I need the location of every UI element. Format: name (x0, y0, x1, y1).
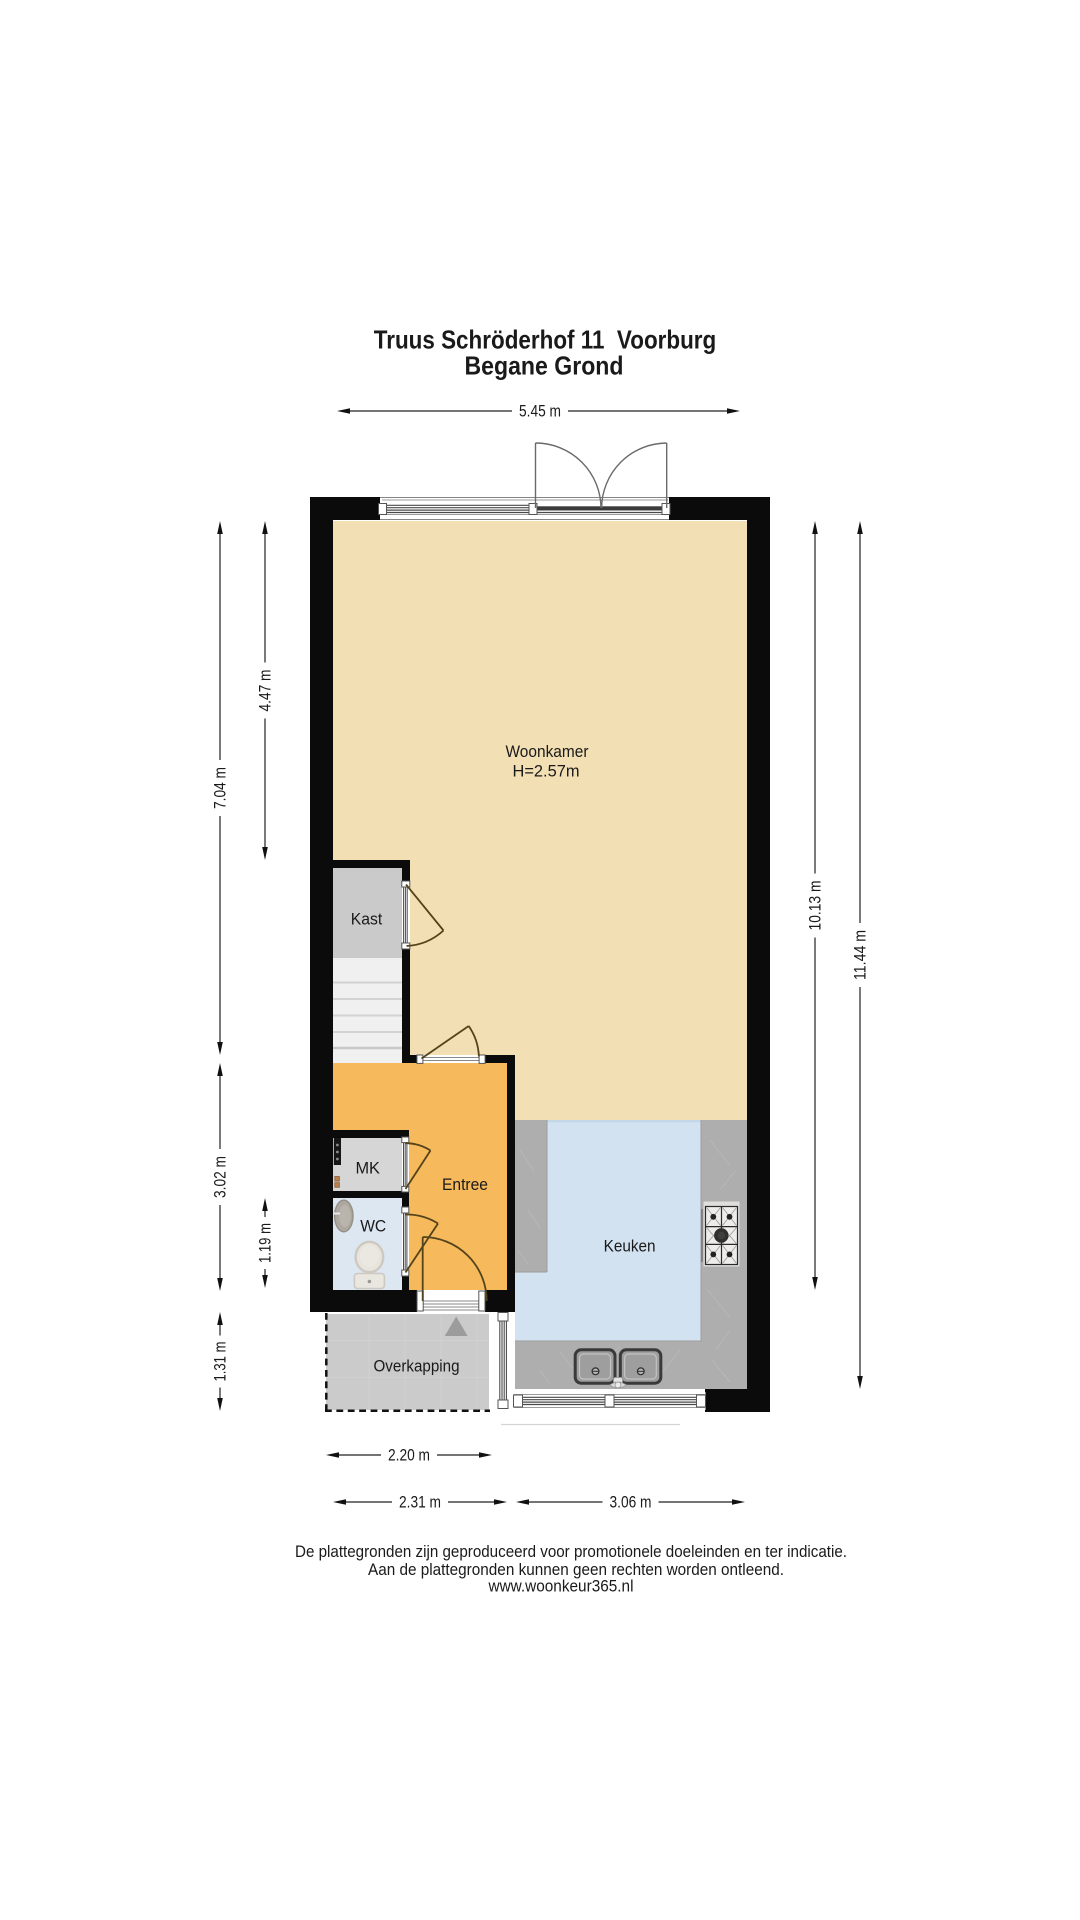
svg-text:5.45 m: 5.45 m (519, 403, 561, 421)
svg-text:H=2.57m: H=2.57m (513, 761, 580, 780)
svg-text:3.06 m: 3.06 m (610, 1494, 652, 1512)
svg-text:Aan de plattegronden kunnen ge: Aan de plattegronden kunnen geen rechten… (368, 1561, 784, 1579)
svg-text:1.19 m: 1.19 m (257, 1223, 275, 1263)
svg-text:Overkapping: Overkapping (374, 1356, 460, 1375)
svg-text:4.47 m: 4.47 m (257, 670, 275, 712)
svg-text:Woonkamer: Woonkamer (506, 742, 589, 761)
svg-text:1.31 m: 1.31 m (212, 1342, 230, 1382)
svg-text:2.20 m: 2.20 m (388, 1447, 430, 1465)
svg-text:Entree: Entree (442, 1175, 488, 1194)
svg-text:Begane Grond: Begane Grond (465, 351, 624, 381)
svg-text:www.woonkeur365.nl: www.woonkeur365.nl (488, 1577, 634, 1595)
svg-text:3.02 m: 3.02 m (212, 1156, 230, 1198)
svg-text:11.44 m: 11.44 m (852, 930, 870, 980)
svg-text:WC: WC (360, 1217, 386, 1236)
svg-text:Keuken: Keuken (604, 1237, 656, 1256)
svg-text:2.31 m: 2.31 m (399, 1494, 441, 1512)
svg-text:Kast: Kast (351, 910, 383, 929)
svg-text:7.04 m: 7.04 m (212, 767, 230, 809)
svg-text:10.13 m: 10.13 m (807, 881, 825, 931)
svg-text:De plattegronden zijn geproduc: De plattegronden zijn geproduceerd voor … (295, 1543, 847, 1561)
svg-text:MK: MK (355, 1158, 380, 1177)
